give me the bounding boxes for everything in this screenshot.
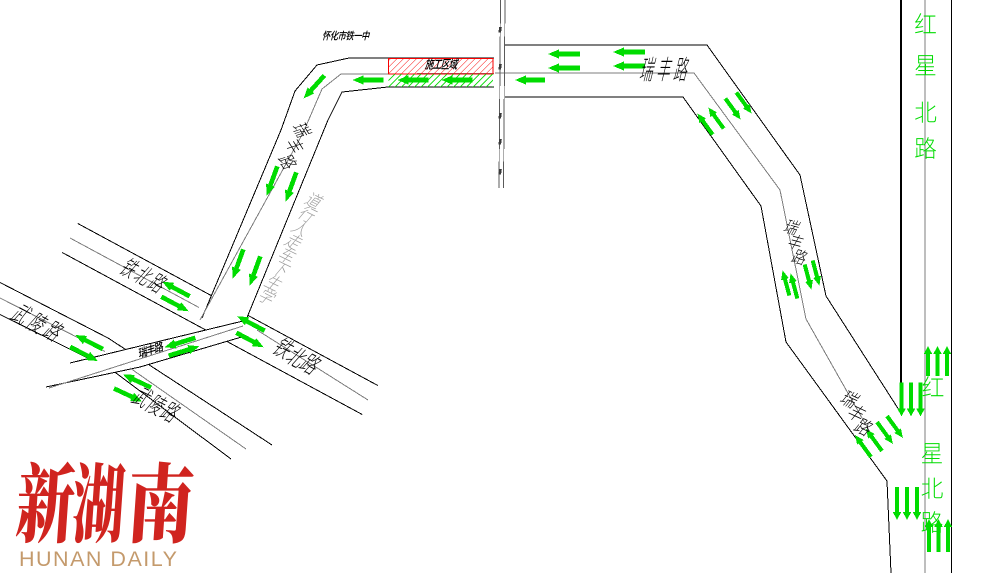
svg-text:HUNAN DAILY: HUNAN DAILY (19, 547, 178, 571)
